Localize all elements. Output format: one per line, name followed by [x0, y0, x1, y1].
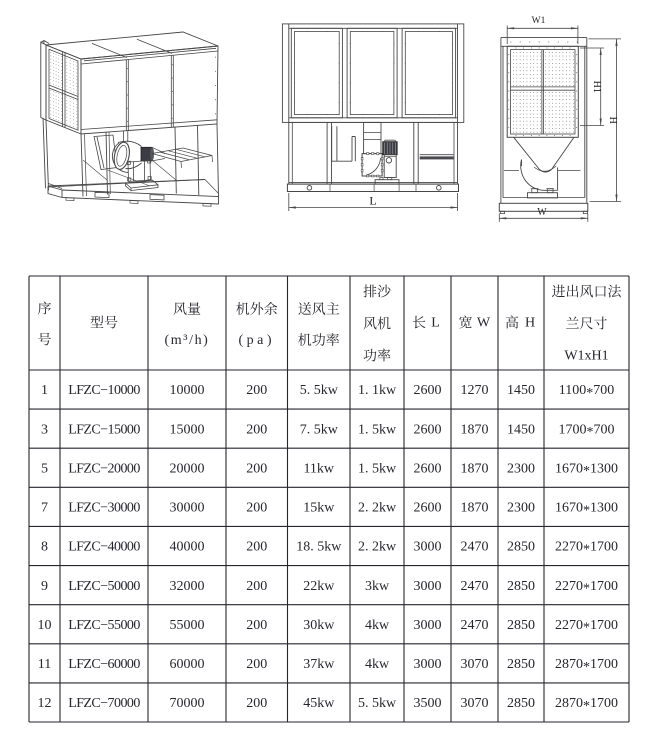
- svg-text:2. 2kw: 2. 2kw: [358, 501, 397, 516]
- svg-text:W1: W1: [532, 16, 546, 26]
- svg-text:1670*1300: 1670*1300: [555, 461, 618, 479]
- svg-text:2270*1700: 2270*1700: [555, 618, 618, 636]
- svg-text:5: 5: [41, 461, 48, 476]
- svg-text:LFZC−15000: LFZC−15000: [68, 422, 140, 437]
- svg-text:4kw: 4kw: [365, 618, 390, 633]
- svg-text:H: H: [607, 117, 618, 124]
- svg-text:3000: 3000: [414, 540, 442, 555]
- svg-text:22kw: 22kw: [303, 579, 335, 594]
- svg-text:200: 200: [246, 579, 267, 594]
- svg-text:18. 5kw: 18. 5kw: [296, 540, 342, 555]
- svg-text:3000: 3000: [414, 579, 442, 594]
- svg-text:200: 200: [246, 383, 267, 398]
- svg-text:3kw: 3kw: [365, 579, 390, 594]
- svg-text:LFZC−60000: LFZC−60000: [68, 657, 140, 672]
- svg-text:1870: 1870: [461, 461, 489, 476]
- svg-text:11kw: 11kw: [303, 461, 334, 476]
- svg-text:3500: 3500: [414, 696, 442, 711]
- svg-text:(pa): (pa): [238, 333, 275, 348]
- svg-text:5. 5kw: 5. 5kw: [300, 383, 339, 398]
- svg-text:2300: 2300: [507, 461, 535, 476]
- svg-text:200: 200: [246, 657, 267, 672]
- svg-text:1270: 1270: [461, 383, 489, 398]
- svg-text:11: 11: [38, 657, 51, 672]
- svg-text:1: 1: [41, 383, 48, 398]
- svg-text:32000: 32000: [170, 579, 205, 594]
- svg-text:1450: 1450: [507, 422, 535, 437]
- svg-text:60000: 60000: [170, 657, 205, 672]
- svg-text:1700*700: 1700*700: [559, 422, 615, 440]
- svg-text:200: 200: [246, 618, 267, 633]
- svg-text:1870: 1870: [461, 501, 489, 516]
- svg-text:(m³/h): (m³/h): [165, 333, 210, 348]
- svg-text:7. 5kw: 7. 5kw: [300, 422, 339, 437]
- svg-text:5. 5kw: 5. 5kw: [358, 696, 397, 711]
- svg-text:W: W: [477, 316, 491, 331]
- svg-text:W1xH1: W1xH1: [564, 349, 608, 364]
- svg-text:LFZC−10000: LFZC−10000: [68, 383, 140, 398]
- svg-text:LFZC−30000: LFZC−30000: [68, 501, 140, 516]
- svg-text:3070: 3070: [461, 696, 489, 711]
- svg-text:2850: 2850: [507, 618, 535, 633]
- svg-text:2300: 2300: [507, 501, 535, 516]
- svg-text:2270*1700: 2270*1700: [555, 540, 618, 558]
- svg-text:3000: 3000: [414, 618, 442, 633]
- svg-text:2470: 2470: [461, 579, 489, 594]
- svg-text:LFZC−40000: LFZC−40000: [68, 540, 140, 555]
- svg-text:10: 10: [38, 618, 52, 633]
- svg-text:200: 200: [246, 540, 267, 555]
- svg-text:9: 9: [41, 579, 48, 594]
- svg-text:1870: 1870: [461, 422, 489, 437]
- svg-text:3070: 3070: [461, 657, 489, 672]
- svg-text:2870*1700: 2870*1700: [555, 657, 618, 675]
- svg-text:2850: 2850: [507, 696, 535, 711]
- svg-text:2600: 2600: [414, 501, 442, 516]
- svg-text:1. 5kw: 1. 5kw: [358, 461, 397, 476]
- svg-text:1670*1300: 1670*1300: [555, 501, 618, 519]
- svg-text:45kw: 45kw: [303, 696, 335, 711]
- svg-text:2. 2kw: 2. 2kw: [358, 540, 397, 555]
- svg-text:200: 200: [246, 461, 267, 476]
- svg-text:20000: 20000: [170, 461, 205, 476]
- svg-text:2600: 2600: [414, 461, 442, 476]
- svg-text:200: 200: [246, 501, 267, 516]
- svg-text:70000: 70000: [170, 696, 205, 711]
- svg-text:8: 8: [41, 540, 48, 555]
- svg-text:15000: 15000: [170, 422, 205, 437]
- svg-text:2470: 2470: [461, 618, 489, 633]
- svg-text:LFZC−55000: LFZC−55000: [68, 618, 140, 633]
- svg-text:2600: 2600: [414, 383, 442, 398]
- svg-text:1. 1kw: 1. 1kw: [358, 383, 397, 398]
- svg-text:2850: 2850: [507, 579, 535, 594]
- svg-text:2600: 2600: [414, 422, 442, 437]
- svg-text:30000: 30000: [170, 501, 205, 516]
- svg-text:LFZC−70000: LFZC−70000: [68, 696, 140, 711]
- svg-text:2270*1700: 2270*1700: [555, 579, 618, 597]
- svg-text:200: 200: [246, 422, 267, 437]
- svg-text:55000: 55000: [170, 618, 205, 633]
- svg-text:200: 200: [246, 696, 267, 711]
- svg-text:L: L: [369, 194, 376, 208]
- svg-text:W: W: [537, 207, 547, 218]
- svg-text:2850: 2850: [507, 657, 535, 672]
- svg-text:2870*1700: 2870*1700: [555, 696, 618, 714]
- svg-text:30kw: 30kw: [303, 618, 335, 633]
- svg-text:1100*700: 1100*700: [559, 383, 614, 401]
- svg-text:H: H: [525, 316, 535, 331]
- svg-text:12: 12: [38, 696, 52, 711]
- svg-text:4kw: 4kw: [365, 657, 390, 672]
- svg-text:2470: 2470: [461, 540, 489, 555]
- svg-text:LFZC−50000: LFZC−50000: [68, 579, 140, 594]
- svg-text:1450: 1450: [507, 383, 535, 398]
- svg-text:L: L: [431, 316, 440, 331]
- svg-text:40000: 40000: [170, 540, 205, 555]
- svg-text:15kw: 15kw: [303, 501, 335, 516]
- svg-text:7: 7: [41, 501, 48, 516]
- svg-text:37kw: 37kw: [303, 657, 335, 672]
- svg-text:1. 5kw: 1. 5kw: [358, 422, 397, 437]
- svg-text:LFZC−20000: LFZC−20000: [68, 461, 140, 476]
- svg-text:3: 3: [41, 422, 48, 437]
- svg-text:H1: H1: [591, 81, 602, 93]
- svg-text:3000: 3000: [414, 657, 442, 672]
- svg-text:2850: 2850: [507, 540, 535, 555]
- svg-text:10000: 10000: [170, 383, 205, 398]
